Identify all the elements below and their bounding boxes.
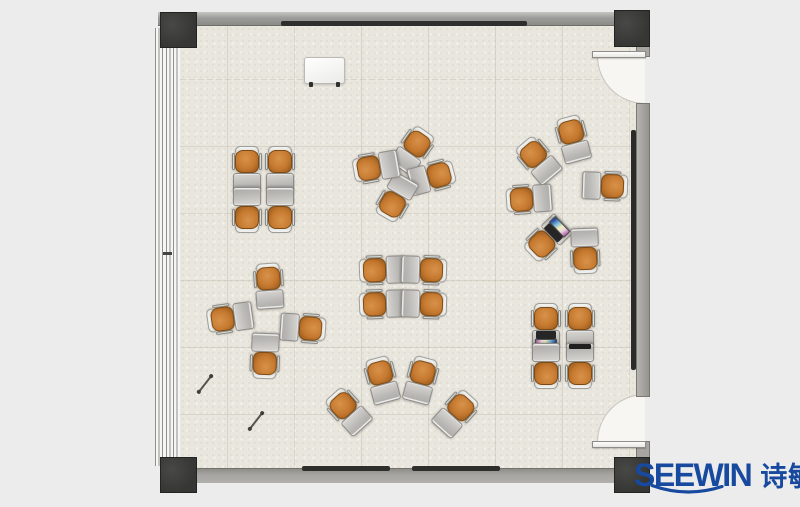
desk-chair-unit [532,343,560,389]
floor-plan: SEEWIN 诗敏 [0,0,800,507]
desk-chair-unit [359,255,406,285]
brand-name-chinese: 诗敏 [760,455,800,494]
whiteboard-rail [302,466,390,471]
window-wall [155,28,180,466]
desk-chair-unit [401,255,448,285]
door-leaf [592,441,646,448]
window-mullion-mark [163,252,172,255]
desk [401,289,421,318]
chair-seat [235,206,259,229]
chair-seat [601,174,625,199]
desk [532,343,560,362]
desk [232,301,255,331]
wall-mounted-screen [631,130,636,370]
desk [582,171,602,200]
desk-chair-unit [253,262,284,310]
chair-armrest [366,316,383,320]
chair-armrest [366,282,383,286]
desk-chair-unit [566,343,594,389]
desk-chair-unit [505,183,553,214]
chair-armrest [558,365,561,382]
chair-armrest [276,355,280,372]
chair-seat [568,307,592,330]
chair-armrest [422,316,439,320]
chair-armrest [292,209,295,226]
structural-column [160,12,197,48]
chair-seat [298,316,323,342]
chair-seat [363,258,387,283]
chair-seat [420,292,444,317]
chair-armrest [603,198,620,202]
desk-chair-unit [570,228,600,275]
whiteboard-rail [412,466,500,471]
desk-chair-unit [266,146,294,192]
chair-seat [363,292,387,317]
desk-chair-unit [250,333,280,380]
laptop-keyboard [536,331,556,339]
desk [401,255,421,284]
chair-seat [268,150,292,173]
chair-armrest [592,310,595,327]
desk-chair-unit [279,312,327,343]
room-floor [180,26,637,468]
desk-chair-unit [233,146,261,192]
chair-armrest [592,365,595,382]
chair-seat [235,150,259,173]
wall-bottom [180,468,637,483]
desk-chair-unit [266,187,294,233]
desk [266,187,294,206]
caster-wheel [309,82,313,87]
door-leaf [592,51,646,58]
desk [570,228,599,248]
tablet [569,344,591,349]
chair-seat [256,266,282,291]
caster-wheel [336,82,340,87]
desk-chair-unit [401,289,448,319]
chair-seat [534,362,558,385]
desk [251,333,280,353]
whiteboard-rail [281,21,527,26]
chair-armrest [259,153,262,170]
chair-seat [210,306,236,333]
chair-armrest [422,282,439,286]
chair-armrest [597,249,601,266]
logo-swoosh-icon [649,483,725,499]
chair-seat [252,352,277,376]
chair-seat [268,206,292,229]
wall-right [636,103,650,397]
brand-logo: SEEWIN 诗敏 [634,455,800,494]
desk [532,183,553,212]
chair-armrest [558,310,561,327]
chair-seat [509,187,534,213]
chair-seat [534,307,558,330]
desk-chair-unit [359,289,406,319]
structural-column [160,457,197,493]
chair-armrest [292,153,295,170]
desk-chair-unit [582,171,629,201]
whiteboard-cart [304,57,345,84]
chair-seat [573,247,598,271]
chair-seat [420,258,444,283]
desk [279,312,300,341]
desk [233,187,261,206]
structural-column [614,10,650,47]
desk-chair-unit [233,187,261,233]
chair-armrest [259,209,262,226]
chair-seat [568,362,592,385]
desk [255,289,284,310]
